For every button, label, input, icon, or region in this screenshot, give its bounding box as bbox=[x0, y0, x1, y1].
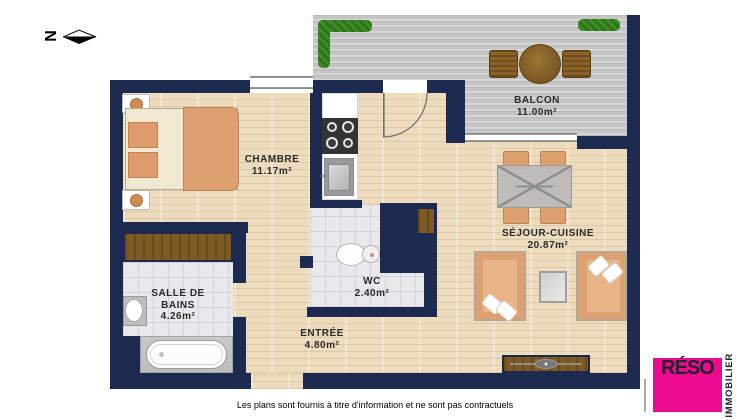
pillow bbox=[128, 152, 158, 178]
logo-tagline-text: IMMOBILIER bbox=[724, 353, 735, 418]
nightstand bbox=[122, 190, 150, 210]
balcony-bay-window bbox=[465, 133, 577, 142]
table-trestle-icon bbox=[498, 166, 571, 207]
logo-tagline-wrap: IMMOBILIER bbox=[722, 358, 737, 412]
sofa bbox=[474, 251, 526, 321]
wall-segment bbox=[627, 15, 640, 389]
wall-segment bbox=[310, 200, 362, 208]
shaft-hatch-door bbox=[417, 208, 435, 234]
compass-letter: N bbox=[43, 30, 61, 42]
balcony-table bbox=[519, 44, 561, 84]
bathtub bbox=[140, 336, 233, 373]
room-label-balcon: BALCON 11.00m² bbox=[514, 95, 560, 118]
wall-segment bbox=[110, 336, 140, 373]
wall-segment bbox=[446, 93, 465, 143]
room-name: BAINS bbox=[161, 300, 195, 311]
toilet-flush-button bbox=[370, 253, 374, 257]
room-area: 20.87m² bbox=[528, 240, 569, 251]
wall-segment bbox=[300, 256, 313, 268]
wall-segment bbox=[110, 373, 251, 389]
wall-segment bbox=[233, 232, 246, 283]
room-name: WC bbox=[363, 276, 381, 287]
room-area: 11.17m² bbox=[252, 166, 292, 177]
room-label-salle-de-bains: SALLE DE BAINS 4.26m² bbox=[151, 288, 204, 323]
balcony-chair bbox=[489, 50, 518, 78]
room-name: ENTRÉE bbox=[300, 328, 344, 339]
pillow bbox=[128, 122, 158, 148]
bathtub-basin bbox=[146, 340, 227, 369]
wall-segment bbox=[310, 93, 322, 203]
tv-icon bbox=[504, 357, 588, 371]
room-name: CHAMBRE bbox=[245, 154, 300, 165]
room-label-entree: ENTRÉE 4.80m² bbox=[300, 328, 344, 351]
floor-plan-canvas: N bbox=[0, 0, 750, 420]
compass-needle-icon bbox=[63, 29, 97, 45]
logo-mark: RÉSO bbox=[653, 358, 722, 412]
kitchen-faucet bbox=[321, 175, 329, 177]
sofa bbox=[576, 251, 627, 321]
room-label-wc: WC 2.40m² bbox=[355, 276, 390, 299]
balcony-chair bbox=[562, 50, 591, 78]
kitchen-sink-basin bbox=[328, 164, 350, 191]
logo-brand-text: RÉSO bbox=[653, 358, 722, 378]
room-area: 4.26m² bbox=[161, 311, 196, 322]
lamp bbox=[130, 194, 143, 207]
compass-north-icon: N bbox=[46, 27, 58, 45]
bedroom-window bbox=[250, 76, 313, 89]
room-area: 4.80m² bbox=[305, 340, 340, 351]
hedge-plant bbox=[318, 20, 330, 68]
room-name: SÉJOUR-CUISINE bbox=[502, 228, 594, 239]
hedge-plant bbox=[578, 19, 620, 31]
bathtub-drain bbox=[159, 352, 164, 357]
entrance-door-opening bbox=[251, 373, 303, 389]
disclaimer-text: Les plans sont fournis à titre d'informa… bbox=[237, 400, 513, 410]
bed bbox=[125, 108, 238, 190]
stove bbox=[322, 118, 358, 154]
wardrobe bbox=[123, 232, 233, 262]
room-label-chambre: CHAMBRE 11.17m² bbox=[245, 154, 300, 177]
bathroom-sink-basin bbox=[125, 299, 143, 322]
bed-cover bbox=[183, 107, 239, 191]
kitchen-sink bbox=[324, 158, 354, 196]
logo-divider-line bbox=[644, 379, 646, 412]
wall-segment bbox=[110, 222, 248, 233]
room-name: SALLE DE bbox=[151, 288, 204, 299]
toilet-tank bbox=[362, 245, 380, 263]
wall-segment bbox=[307, 307, 437, 317]
tv-stand bbox=[502, 355, 590, 373]
room-area: 2.40m² bbox=[355, 288, 390, 299]
dining-table bbox=[497, 165, 572, 208]
room-name: BALCON bbox=[514, 95, 560, 106]
bathroom-sink bbox=[123, 296, 147, 326]
balcony-door-swing-icon bbox=[383, 93, 429, 139]
wall-segment bbox=[303, 373, 640, 389]
wall-segment bbox=[233, 317, 246, 373]
wall-segment bbox=[577, 136, 627, 149]
room-label-sejour-cuisine: SÉJOUR-CUISINE 20.87m² bbox=[502, 228, 594, 251]
room-area: 11.00m² bbox=[517, 107, 557, 118]
wall-segment bbox=[110, 80, 250, 93]
wall-segment bbox=[427, 80, 465, 93]
wall-segment bbox=[313, 80, 383, 93]
coffee-table bbox=[539, 271, 567, 303]
